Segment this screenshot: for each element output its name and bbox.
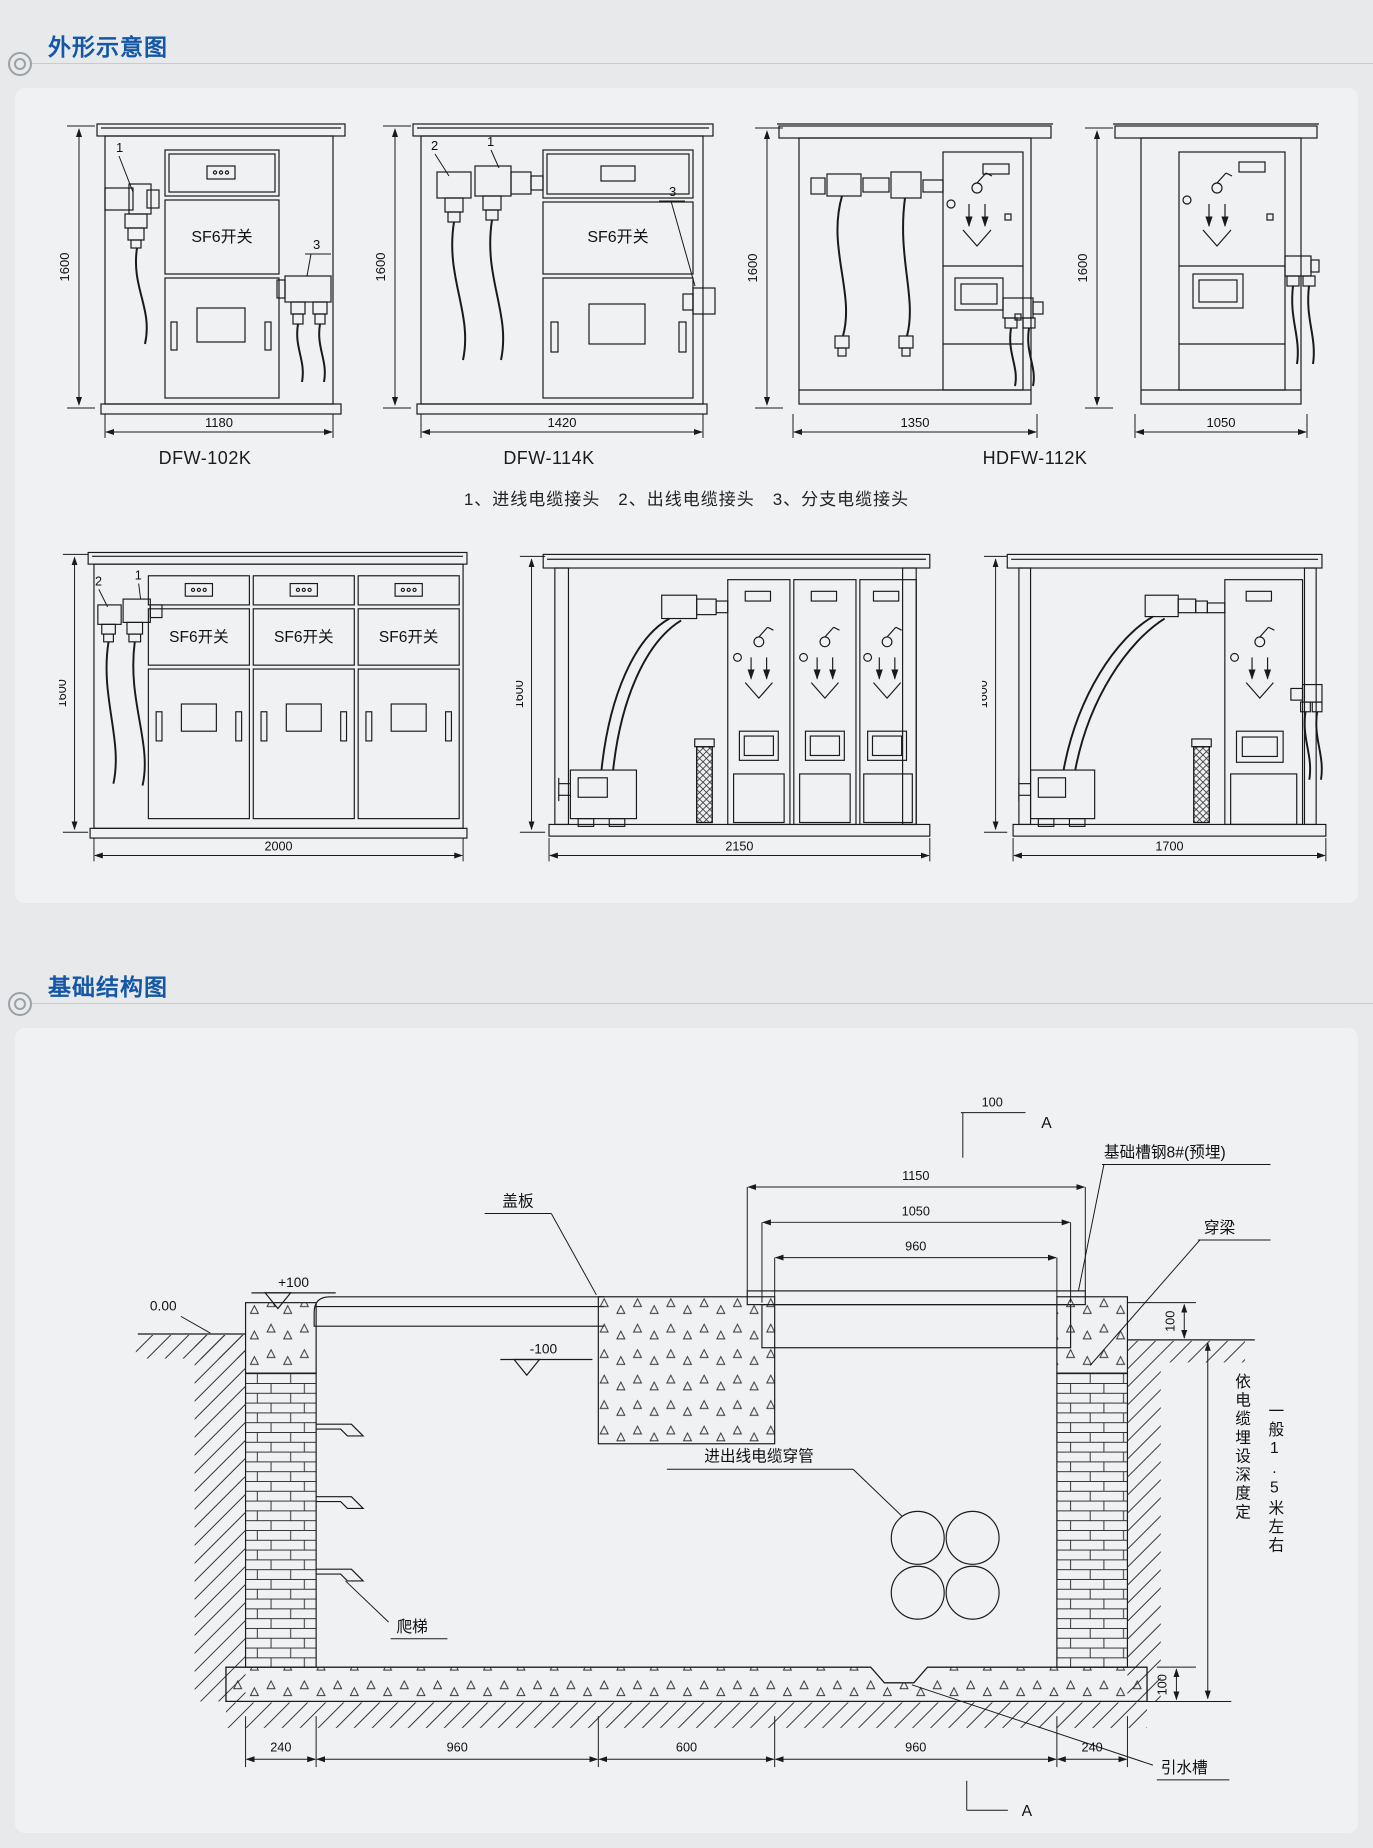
level-minus100-label: -100 bbox=[530, 1342, 558, 1357]
cabinet-base bbox=[90, 828, 467, 838]
height-dimension: 1600 bbox=[1075, 128, 1113, 408]
level-minus100-marker: -100 bbox=[500, 1342, 592, 1376]
left-post bbox=[555, 568, 569, 824]
section-divider-line bbox=[28, 1003, 1373, 1004]
cabinet-dfw-102k-block: 1600 SF6开关 bbox=[59, 108, 351, 469]
section-a-label-bottom: A bbox=[1022, 1803, 1033, 1820]
cabinet-hdfw-112k-block: 1600 bbox=[747, 108, 1323, 469]
switch-unit: SF6开关 bbox=[165, 150, 279, 398]
middle-pier bbox=[598, 1297, 774, 1444]
dim-1150-label: 1150 bbox=[902, 1168, 929, 1183]
section-bullet-icon bbox=[8, 992, 32, 1016]
outline-drawings-card: 1600 SF6开关 bbox=[15, 88, 1358, 903]
section-a-label-top: A bbox=[1041, 1115, 1052, 1132]
roof bbox=[413, 124, 713, 136]
switchgear-panel bbox=[1179, 152, 1285, 390]
compartment-2: SF6开关 bbox=[253, 576, 354, 819]
height-dim-label: 1600 bbox=[516, 680, 526, 708]
cabinet-base bbox=[549, 824, 930, 836]
cabinet-2150-drawing: 1600 bbox=[516, 536, 939, 872]
dim-1050-label: 1050 bbox=[902, 1203, 930, 1218]
model-name-dfw-102k: DFW-102K bbox=[159, 448, 252, 469]
right-post bbox=[1305, 568, 1317, 824]
dim-right-100-label: 100 bbox=[1162, 1311, 1177, 1332]
section-bullet-icon bbox=[8, 52, 32, 76]
foundation-section-header: 基础结构图 bbox=[0, 950, 1373, 1020]
callout-1: 1 bbox=[116, 140, 133, 192]
cabinet-2000-drawing: 1600 SF6开关 SF6开关 bbox=[59, 536, 472, 872]
roof bbox=[88, 552, 467, 564]
dim-240-right-label: 240 bbox=[1082, 1739, 1103, 1754]
incoming-cable-connector bbox=[475, 166, 543, 360]
callout-1: 1 bbox=[135, 569, 142, 599]
outgoing-cable-connector bbox=[437, 172, 471, 360]
width-dimension: 2150 bbox=[549, 838, 930, 861]
switch-bay bbox=[1225, 580, 1303, 825]
model-name-dfw-114k: DFW-114K bbox=[503, 448, 594, 469]
ladder: 爬梯 bbox=[316, 1424, 447, 1639]
switch-bay-3 bbox=[860, 580, 916, 825]
width-dimension: 2000 bbox=[94, 838, 463, 861]
section-divider-line bbox=[28, 63, 1373, 64]
roof bbox=[543, 554, 930, 568]
incoming-cable-connectors bbox=[811, 172, 943, 356]
outline-section-title: 外形示意图 bbox=[48, 28, 168, 62]
depth-note-2: 一般1.5米左右 bbox=[1266, 1403, 1284, 1556]
depth-note-1: 依电缆埋设深度定 bbox=[1233, 1373, 1251, 1522]
outline-section-header: 外形示意图 bbox=[0, 10, 1373, 80]
door bbox=[543, 278, 693, 398]
width-dim-label: 2000 bbox=[264, 840, 292, 854]
catalog-page: 外形示意图 1600 bbox=[0, 0, 1373, 1848]
cabinet-hdfw-112k-right-drawing: 1600 bbox=[1071, 108, 1323, 444]
cabinet-1700-drawing: 1600 bbox=[982, 536, 1334, 872]
right-wall bbox=[1057, 1297, 1255, 1702]
sf6-panel-label: SF6开关 bbox=[274, 628, 334, 646]
door bbox=[165, 278, 279, 398]
width-dimension: 1050 bbox=[1135, 414, 1307, 438]
height-dim-label: 1600 bbox=[982, 680, 990, 708]
height-dimension: 1600 bbox=[516, 556, 545, 832]
height-dimension: 1600 bbox=[59, 554, 88, 832]
cabinet-dfw-114k-drawing: 1600 SF6开关 bbox=[375, 108, 723, 444]
cabinet-body bbox=[421, 136, 703, 404]
incoming-cable-connector bbox=[105, 184, 159, 344]
level-plus100-label: +100 bbox=[278, 1275, 309, 1290]
callout-2: 2 bbox=[431, 138, 449, 176]
height-dimension: 1600 bbox=[59, 126, 95, 408]
callout-1-label: 1 bbox=[116, 140, 123, 155]
callout-2-label: 2 bbox=[95, 574, 102, 588]
sf6-panel-label: SF6开关 bbox=[191, 228, 252, 246]
callout-2-label: 2 bbox=[431, 138, 438, 153]
switch-bay-2 bbox=[794, 580, 856, 825]
level-zero-label: 0.00 bbox=[150, 1299, 177, 1314]
width-dimension: 1420 bbox=[421, 414, 703, 438]
branch-cable-connectors bbox=[1285, 256, 1319, 364]
width-dimension: 1180 bbox=[105, 414, 333, 438]
branch-cable-connectors bbox=[277, 276, 331, 382]
cabinet-base bbox=[417, 404, 707, 414]
roof bbox=[97, 124, 345, 136]
equipment-foundation-slab bbox=[747, 1291, 1085, 1348]
cabinet-body bbox=[94, 564, 463, 828]
callout-3: 3 bbox=[305, 237, 331, 276]
height-dim-label: 1600 bbox=[59, 679, 69, 707]
branch-cable-connectors bbox=[1291, 685, 1322, 780]
left-wall bbox=[195, 1303, 317, 1702]
callout-3-label: 3 bbox=[669, 184, 676, 199]
section-marker-top: 100 A bbox=[961, 1095, 1052, 1158]
cover-plate: 盖板 bbox=[314, 1193, 604, 1327]
cable-pipes-label: 进出线电缆穿管 bbox=[704, 1447, 814, 1465]
roof bbox=[779, 126, 1051, 138]
slab-dimensions: 1150 1050 960 bbox=[747, 1168, 1085, 1302]
branch-cable-connector bbox=[683, 288, 715, 314]
pier-height-dimension: 100 bbox=[1127, 1303, 1196, 1338]
cable-terminal-assembly bbox=[559, 595, 728, 826]
callout-3: 3 bbox=[659, 184, 695, 286]
cabinet-base bbox=[101, 404, 341, 414]
outline-row-2: 1600 SF6开关 SF6开关 bbox=[15, 510, 1358, 872]
dim-600-label: 600 bbox=[676, 1739, 697, 1754]
sf6-panel-label: SF6开关 bbox=[379, 628, 439, 646]
pit-floor bbox=[226, 1667, 1147, 1728]
roof bbox=[1115, 126, 1317, 138]
cabinet-body bbox=[799, 138, 1031, 404]
section-marker-100-label: 100 bbox=[982, 1095, 1003, 1110]
sf6-panel-label: SF6开关 bbox=[587, 228, 648, 246]
cable-terminal-assembly bbox=[1019, 595, 1225, 826]
cable-pipes: 进出线电缆穿管 bbox=[667, 1447, 999, 1619]
height-dimension: 1600 bbox=[982, 556, 1007, 832]
cabinet-body bbox=[105, 136, 333, 404]
ladder-label: 爬梯 bbox=[396, 1618, 427, 1636]
height-dim-label: 1600 bbox=[747, 254, 760, 283]
cabinet-base bbox=[1013, 824, 1326, 836]
model-name-hdfw-112k: HDFW-112K bbox=[983, 448, 1088, 469]
switch-bay-1 bbox=[728, 580, 790, 825]
width-dim-label: 2150 bbox=[725, 840, 753, 854]
floor-thickness-dimension: 100 bbox=[1155, 1667, 1196, 1701]
compartment-1: SF6开关 bbox=[148, 576, 249, 819]
width-dim-label: 1180 bbox=[205, 415, 233, 430]
depth-dimension: 依电缆埋设深度定 一般1.5米左右 bbox=[1147, 1343, 1284, 1702]
callout-2: 2 bbox=[95, 574, 108, 606]
height-dim-label: 1600 bbox=[1075, 254, 1090, 283]
cabinet-hdfw-112k-left-drawing: 1600 bbox=[747, 108, 1057, 444]
callout-1-label: 1 bbox=[487, 134, 494, 149]
drain-channel-label: 引水槽 bbox=[1161, 1759, 1208, 1777]
dim-960-left-label: 960 bbox=[447, 1739, 468, 1754]
right-post bbox=[902, 568, 916, 824]
width-dim-label: 1050 bbox=[1207, 415, 1236, 430]
dim-floor-100-label: 100 bbox=[1155, 1674, 1170, 1695]
callout-1: 1 bbox=[487, 134, 499, 168]
width-dimension: 1350 bbox=[793, 414, 1037, 438]
beam-label: 穿梁 bbox=[1204, 1219, 1236, 1237]
foundation-structure-card: 0.00 +100 盖板 bbox=[15, 1028, 1358, 1833]
cover-plate-label: 盖板 bbox=[502, 1193, 534, 1211]
callout-3-label: 3 bbox=[313, 237, 320, 252]
callout-1-label: 1 bbox=[135, 569, 142, 583]
dim-240-left-label: 240 bbox=[270, 1739, 291, 1754]
section-marker-bottom: A bbox=[967, 1781, 1033, 1820]
connector-legend-caption: 1、进线电缆接头 2、出线电缆接头 3、分支电缆接头 bbox=[15, 485, 1358, 510]
cabinet-dfw-102k-drawing: 1600 SF6开关 bbox=[59, 108, 351, 444]
roof bbox=[1008, 554, 1323, 568]
channel-steel-label: 基础槽钢8#(预埋) bbox=[1104, 1144, 1226, 1162]
width-dim-label: 1700 bbox=[1156, 840, 1184, 854]
dim-960-label: 960 bbox=[905, 1239, 926, 1254]
height-dimension: 1600 bbox=[747, 128, 783, 408]
compartment-3: SF6开关 bbox=[358, 576, 459, 819]
incoming-outgoing-connectors bbox=[98, 599, 162, 786]
width-dim-label: 1350 bbox=[901, 415, 930, 430]
width-dimension: 1700 bbox=[1013, 838, 1326, 861]
foundation-section-title: 基础结构图 bbox=[48, 968, 168, 1002]
sf6-panel-label: SF6开关 bbox=[169, 628, 229, 646]
height-dim-label: 1600 bbox=[375, 253, 388, 282]
dim-960-right-label: 960 bbox=[905, 1739, 926, 1754]
outline-row-1: 1600 SF6开关 bbox=[15, 88, 1358, 469]
cabinet-dfw-114k-block: 1600 SF6开关 bbox=[375, 108, 723, 469]
height-dimension: 1600 bbox=[375, 126, 411, 408]
width-dim-label: 1420 bbox=[548, 415, 577, 430]
left-post bbox=[1019, 568, 1031, 824]
foundation-cross-section-drawing: 0.00 +100 盖板 bbox=[79, 1040, 1294, 1824]
height-dim-label: 1600 bbox=[59, 253, 72, 282]
